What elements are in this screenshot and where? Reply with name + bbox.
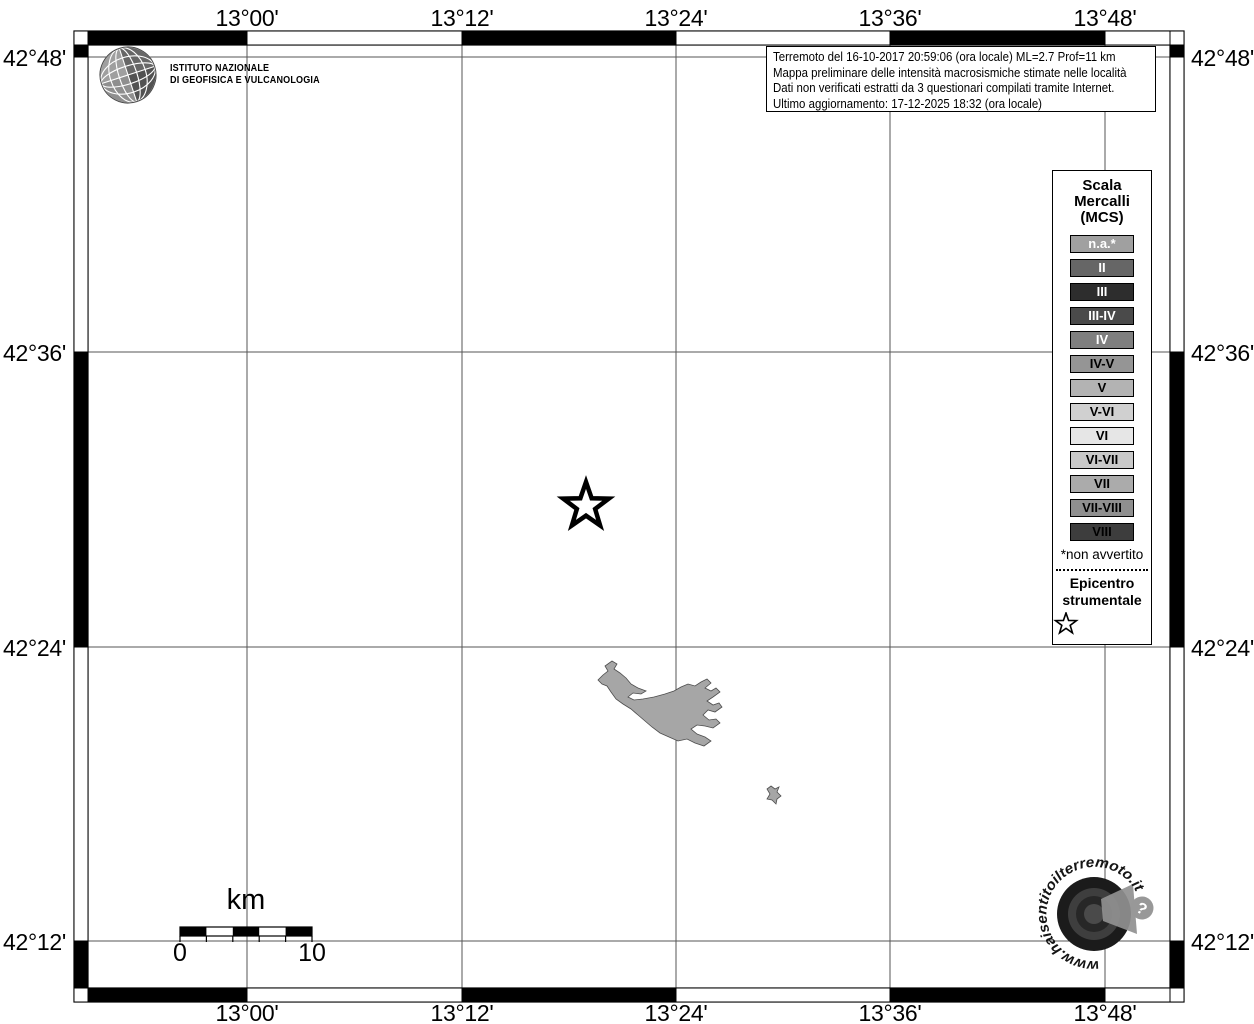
frame-segment — [74, 57, 88, 352]
scale-end-label: 10 — [292, 939, 332, 968]
lat-label-left: 42°36' — [2, 340, 66, 367]
legend-title-line: Scala — [1053, 178, 1151, 194]
legend-item: IV-V — [1070, 355, 1134, 373]
info-line-update: Ultimo aggiornamento: 17-12-2025 18:32 (… — [773, 96, 1109, 112]
frame-segment — [247, 31, 462, 45]
mercalli-legend: Scala Mercalli (MCS) n.a.* II III III-IV… — [1052, 170, 1152, 645]
ingv-logo-text: ISTITUTO NAZIONALE DI GEOFISICA E VULCAN… — [170, 62, 320, 86]
legend-item: VII — [1070, 475, 1134, 493]
legend-divider — [1056, 569, 1148, 571]
legend-item: VI — [1070, 427, 1134, 445]
lake-shape-small — [767, 786, 781, 804]
frame-segment — [890, 31, 1105, 45]
legend-note: *non avvertito — [1053, 547, 1151, 562]
frame-segment — [676, 31, 890, 45]
macroseismic-map-page: ? www.haisentitoilterremoto.it 13°00' 13… — [0, 0, 1254, 1024]
ingv-name-line1: ISTITUTO NAZIONALE — [170, 62, 320, 74]
frame-segment — [1170, 352, 1184, 647]
lon-label-bottom: 13°24' — [621, 1000, 731, 1024]
legend-item: IV — [1070, 331, 1134, 349]
frame-segment — [74, 45, 88, 57]
lon-label-bottom: 13°36' — [835, 1000, 945, 1024]
lat-label-right: 42°48' — [1191, 45, 1254, 72]
map-frame — [74, 31, 1184, 1002]
scale-start-label: 0 — [165, 939, 195, 968]
info-line-maptype: Mappa preliminare delle intensità macros… — [773, 65, 1109, 81]
legend-item: V-VI — [1070, 403, 1134, 421]
frame-segment — [74, 647, 88, 941]
lon-label-top: 13°24' — [621, 5, 731, 32]
legend-title-line: Mercalli — [1053, 194, 1151, 210]
legend-item: VII-VIII — [1070, 499, 1134, 517]
scale-bar-segment — [180, 927, 206, 936]
frame-segment — [1170, 45, 1184, 57]
frame-inner — [88, 45, 1170, 988]
legend-item: VI-VII — [1070, 451, 1134, 469]
frame-segment — [1105, 31, 1170, 45]
lon-label-bottom: 13°12' — [407, 1000, 517, 1024]
lat-label-right: 42°36' — [1191, 340, 1254, 367]
legend-title: Scala Mercalli (MCS) — [1053, 171, 1151, 226]
frame-segment — [74, 941, 88, 988]
scale-bar-segment — [233, 927, 259, 936]
haisentito-logo[interactable]: ? www.haisentitoilterremoto.it — [1034, 855, 1153, 974]
legend-title-line: (MCS) — [1053, 210, 1151, 226]
ingv-name-line2: DI GEOFISICA E VULCANOLOGIA — [170, 74, 320, 86]
frame-segment — [1170, 647, 1184, 941]
frame-segment — [1170, 941, 1184, 988]
frame-segment — [1170, 57, 1184, 352]
frame-corner — [74, 31, 88, 45]
lat-label-left: 42°12' — [2, 929, 66, 956]
legend-item: V — [1070, 379, 1134, 397]
frame-segment — [462, 31, 676, 45]
frame-segment — [74, 352, 88, 647]
legend-items: n.a.* II III III-IV IV IV-V V V-VI VI VI… — [1053, 235, 1151, 541]
lat-label-right: 42°12' — [1191, 929, 1254, 956]
frame-corner — [1170, 988, 1184, 1002]
lake-shape-large — [598, 661, 722, 746]
info-line-event: Terremoto del 16-10-2017 20:59:06 (ora l… — [773, 49, 1109, 65]
legend-item: III — [1070, 283, 1134, 301]
info-line-data: Dati non verificati estratti da 3 questi… — [773, 80, 1109, 96]
legend-item: n.a.* — [1070, 235, 1134, 253]
frame-corner — [1170, 31, 1184, 45]
lon-label-bottom: 13°48' — [1050, 1000, 1160, 1024]
lon-label-top: 13°12' — [407, 5, 517, 32]
legend-item: II — [1070, 259, 1134, 277]
epicenter-star-icon — [1053, 612, 1079, 636]
earthquake-info-box: Terremoto del 16-10-2017 20:59:06 (ora l… — [766, 46, 1156, 112]
graticule — [88, 45, 1170, 988]
scale-unit-label: km — [216, 884, 276, 917]
lat-label-left: 42°48' — [2, 45, 66, 72]
epicenter-star-marker — [563, 482, 609, 525]
frame-outer — [74, 31, 1184, 1002]
lat-label-right: 42°24' — [1191, 635, 1254, 662]
scale-bar-segment — [286, 927, 312, 936]
lat-label-left: 42°24' — [2, 635, 66, 662]
legend-item: VIII — [1070, 523, 1134, 541]
lon-label-bottom: 13°00' — [192, 1000, 302, 1024]
lon-label-top: 13°48' — [1050, 5, 1160, 32]
legend-item: III-IV — [1070, 307, 1134, 325]
logo-center-dot — [1084, 904, 1104, 924]
frame-segment — [88, 31, 247, 45]
legend-epicenter-label: Epicentro strumentale — [1053, 575, 1151, 609]
ingv-globe-icon — [93, 40, 164, 111]
lon-label-top: 13°36' — [835, 5, 945, 32]
frame-corner — [74, 988, 88, 1002]
lon-label-top: 13°00' — [192, 5, 302, 32]
